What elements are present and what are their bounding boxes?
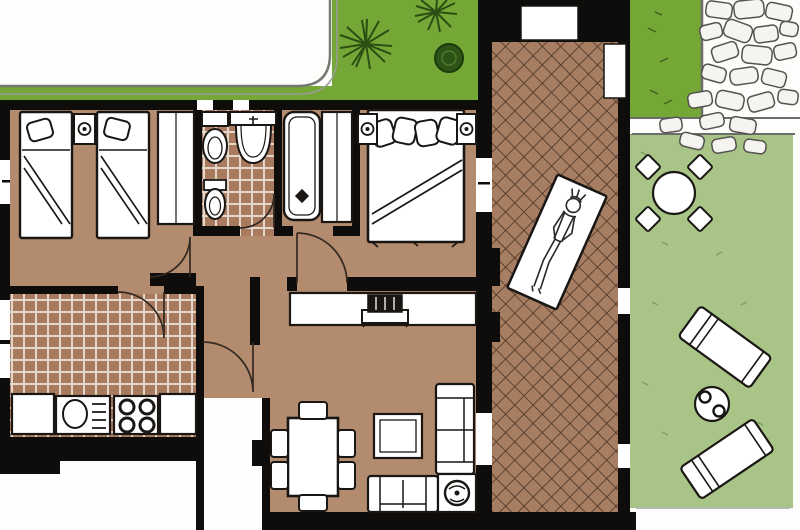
cup-icon [700, 392, 711, 403]
window [0, 300, 10, 340]
window [0, 344, 10, 378]
burner-icon [120, 418, 134, 432]
coffee-table-inner [380, 420, 416, 452]
sofa-vertical [436, 384, 474, 474]
master-door-opening [297, 277, 347, 291]
round-garden-table [653, 172, 695, 214]
cup-icon [714, 406, 725, 417]
neighbor-block [0, 0, 337, 94]
master-bedroom [358, 110, 476, 247]
twin-bedroom [20, 112, 194, 238]
counter-cabinet [12, 394, 54, 434]
window [233, 100, 249, 110]
sofa-horizontal [368, 476, 438, 512]
sink-basin [63, 400, 87, 428]
terrace-door [476, 413, 492, 465]
dining-chair [271, 462, 288, 489]
dining-table [288, 418, 338, 496]
tv-set [362, 295, 408, 327]
dining-chair [271, 430, 288, 457]
round-bush-icon [435, 44, 463, 72]
terrace [478, 0, 630, 515]
nook-opening [293, 226, 333, 236]
floor-plan-image [0, 0, 800, 530]
pillow [392, 116, 419, 145]
burner-icon [140, 400, 154, 414]
dining-chair [338, 430, 355, 457]
window [197, 100, 213, 110]
garden-gate [604, 44, 626, 98]
terrace-window [521, 6, 578, 40]
counter-cabinet [160, 394, 196, 434]
bath-nook [284, 112, 352, 222]
terrace-window [476, 158, 492, 212]
burner-icon [140, 418, 154, 432]
floor-plan-drawing [0, 0, 800, 530]
dining-chair [299, 495, 327, 511]
dining-chair [338, 462, 355, 489]
dining-chair [299, 402, 327, 419]
burner-icon [120, 400, 134, 414]
kitchen [12, 394, 196, 434]
toilet-tank [202, 112, 228, 126]
drinks-table [695, 387, 729, 421]
corner-plant-stand [438, 474, 476, 512]
